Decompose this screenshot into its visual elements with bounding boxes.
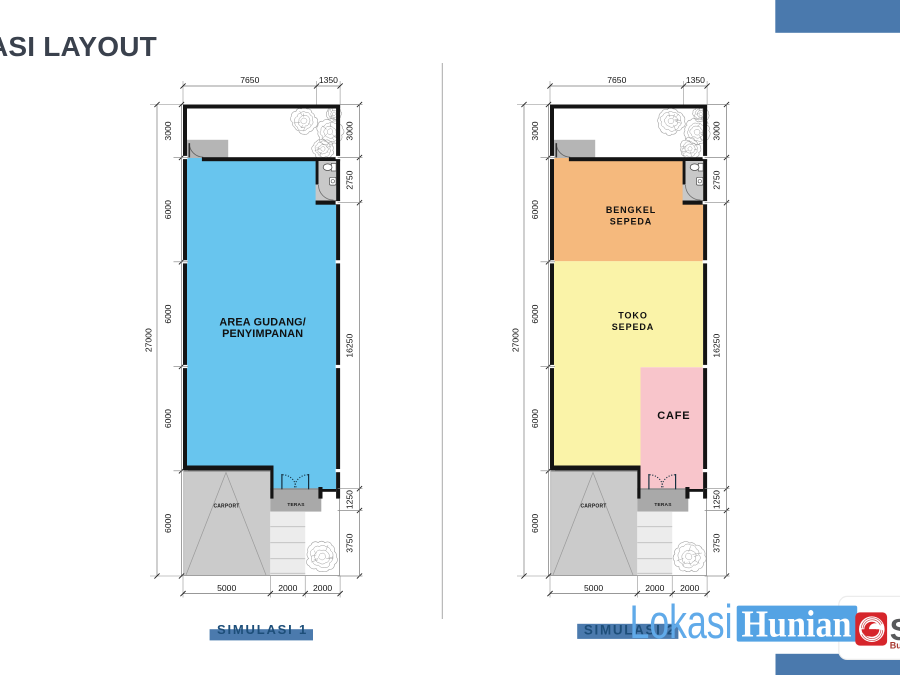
svg-text:3000: 3000: [712, 121, 722, 140]
svg-text:6000: 6000: [163, 409, 173, 428]
svg-text:3000: 3000: [163, 121, 173, 140]
svg-text:6000: 6000: [163, 514, 173, 533]
svg-text:2000: 2000: [313, 583, 332, 593]
svg-text:6000: 6000: [530, 514, 540, 533]
svg-text:SIMULASI 1: SIMULASI 1: [217, 622, 308, 637]
svg-text:5000: 5000: [584, 583, 603, 593]
svg-text:7650: 7650: [607, 75, 626, 85]
svg-text:2000: 2000: [278, 583, 297, 593]
svg-text:Hunian: Hunian: [742, 604, 852, 646]
svg-text:CARPORT: CARPORT: [213, 503, 239, 509]
svg-text:1250: 1250: [345, 490, 355, 509]
svg-text:2750: 2750: [345, 170, 355, 189]
svg-text:2750: 2750: [712, 170, 722, 189]
svg-text:SEPEDA: SEPEDA: [612, 322, 654, 332]
svg-text:TERAS: TERAS: [654, 502, 672, 508]
svg-text:6000: 6000: [530, 409, 540, 428]
svg-text:CARPORT: CARPORT: [580, 503, 606, 509]
svg-text:6000: 6000: [530, 200, 540, 219]
svg-text:3750: 3750: [345, 533, 355, 552]
svg-text:7650: 7650: [240, 75, 259, 85]
svg-text:CAFE: CAFE: [657, 410, 690, 422]
svg-text:2000: 2000: [645, 583, 664, 593]
svg-text:16250: 16250: [345, 334, 355, 358]
svg-text:Bu: Bu: [890, 640, 900, 650]
svg-text:SEPEDA: SEPEDA: [610, 217, 652, 227]
svg-text:2000: 2000: [680, 583, 699, 593]
svg-text:Lokasi: Lokasi: [630, 595, 733, 648]
svg-text:6000: 6000: [163, 304, 173, 323]
svg-text:3000: 3000: [530, 121, 540, 140]
svg-text:AREA GUDANG/: AREA GUDANG/: [219, 317, 306, 329]
svg-text:1350: 1350: [319, 75, 338, 85]
svg-text:TOKO: TOKO: [618, 310, 647, 320]
svg-text:ASI LAYOUT: ASI LAYOUT: [0, 31, 157, 62]
svg-text:1250: 1250: [712, 490, 722, 509]
svg-text:3750: 3750: [712, 533, 722, 552]
svg-text:1350: 1350: [686, 75, 705, 85]
svg-text:TERAS: TERAS: [287, 502, 305, 508]
svg-text:PENYIMPANAN: PENYIMPANAN: [222, 328, 303, 340]
svg-text:27000: 27000: [144, 328, 154, 352]
svg-text:BENGKEL: BENGKEL: [606, 205, 656, 215]
svg-text:5000: 5000: [217, 583, 236, 593]
svg-text:3000: 3000: [345, 121, 355, 140]
svg-text:6000: 6000: [163, 200, 173, 219]
svg-text:6000: 6000: [530, 304, 540, 323]
svg-text:27000: 27000: [511, 328, 521, 352]
svg-text:16250: 16250: [712, 334, 722, 358]
